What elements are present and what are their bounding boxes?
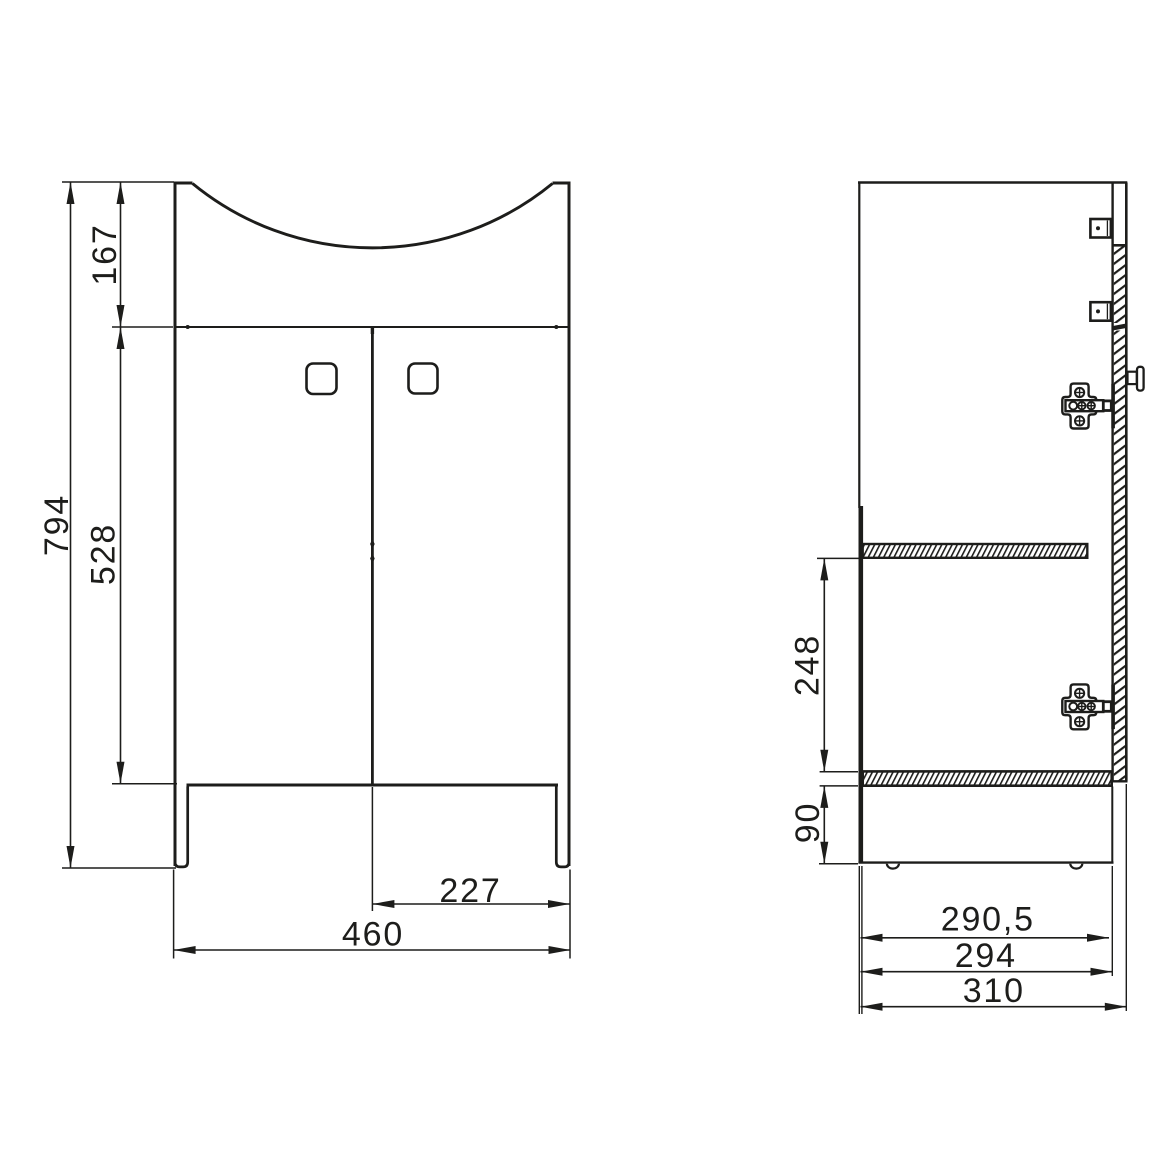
svg-text:528: 528 [85,523,123,585]
svg-text:294: 294 [955,937,1017,975]
svg-text:460: 460 [342,916,404,954]
svg-text:794: 794 [38,494,76,556]
svg-text:310: 310 [963,972,1025,1010]
svg-text:90: 90 [789,802,827,843]
svg-text:248: 248 [789,634,827,696]
svg-text:290,5: 290,5 [941,901,1035,939]
svg-text:227: 227 [439,872,501,910]
svg-text:167: 167 [86,223,124,285]
